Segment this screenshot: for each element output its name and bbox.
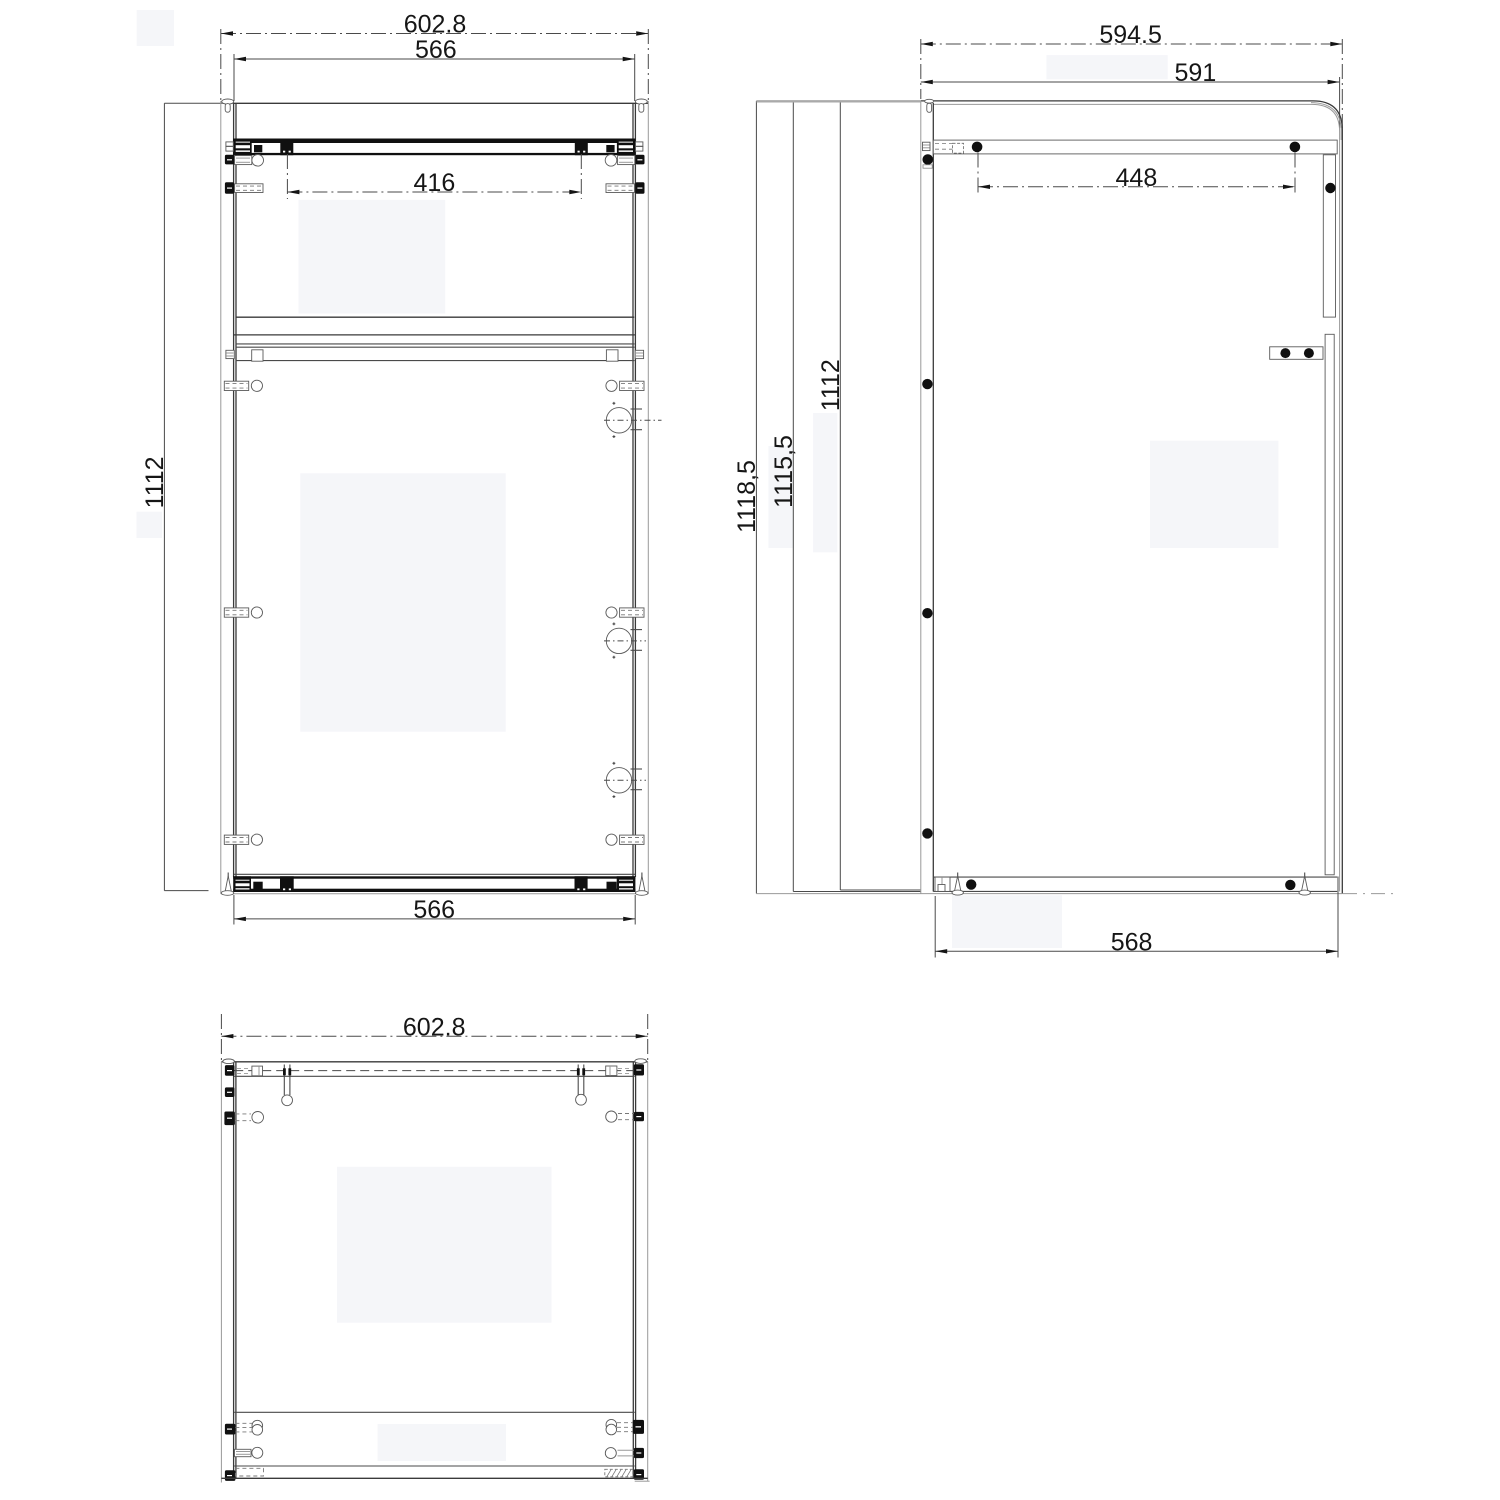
svg-text:416: 416 xyxy=(414,169,456,197)
svg-text:602.8: 602.8 xyxy=(404,11,467,39)
svg-text:566: 566 xyxy=(415,36,457,64)
svg-text:591: 591 xyxy=(1175,59,1217,87)
svg-text:566: 566 xyxy=(413,896,455,924)
svg-text:568: 568 xyxy=(1111,928,1153,956)
svg-text:594.5: 594.5 xyxy=(1099,21,1162,49)
svg-text:448: 448 xyxy=(1116,164,1158,192)
svg-text:602.8: 602.8 xyxy=(403,1013,466,1041)
